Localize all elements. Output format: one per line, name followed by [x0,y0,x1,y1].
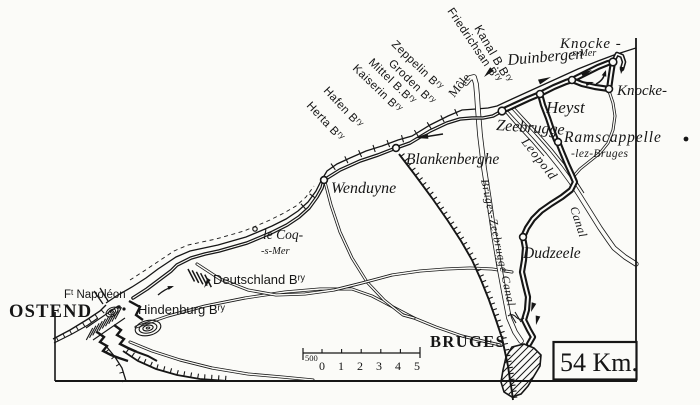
svg-text:Wenduyne: Wenduyne [331,180,396,197]
svg-text:4: 4 [395,359,401,373]
svg-text:OSTEND: OSTEND [9,302,92,322]
svg-text:500: 500 [305,353,318,363]
svg-text:-s-Mer: -s-Mer [569,48,596,59]
svg-text:0: 0 [319,359,325,373]
svg-text:3: 3 [376,359,382,373]
svg-text:5: 5 [414,359,420,373]
svg-text:Deutschland Bry: Deutschland Bry [213,272,306,287]
svg-text:le Coq-: le Coq- [263,227,304,242]
svg-text:BRUGES: BRUGES [430,332,506,351]
svg-text:Blankenberghe: Blankenberghe [406,151,499,168]
svg-text:1: 1 [338,359,344,373]
svg-text:Knocke-: Knocke- [616,83,667,99]
svg-text:Ft Napoléon: Ft Napoléon [64,288,126,301]
svg-text:Heyst: Heyst [545,98,586,117]
svg-text:-s-Mer: -s-Mer [261,246,290,257]
svg-text:54 Km.: 54 Km. [560,348,638,377]
svg-text:Ramscappelle: Ramscappelle [563,129,662,146]
svg-text:-lez-Bruges: -lez-Bruges [571,148,629,160]
svg-text:2: 2 [357,359,363,373]
svg-text:Dudzeele: Dudzeele [522,245,581,262]
svg-text:Hindenburg Bry: Hindenburg Bry [138,302,225,317]
